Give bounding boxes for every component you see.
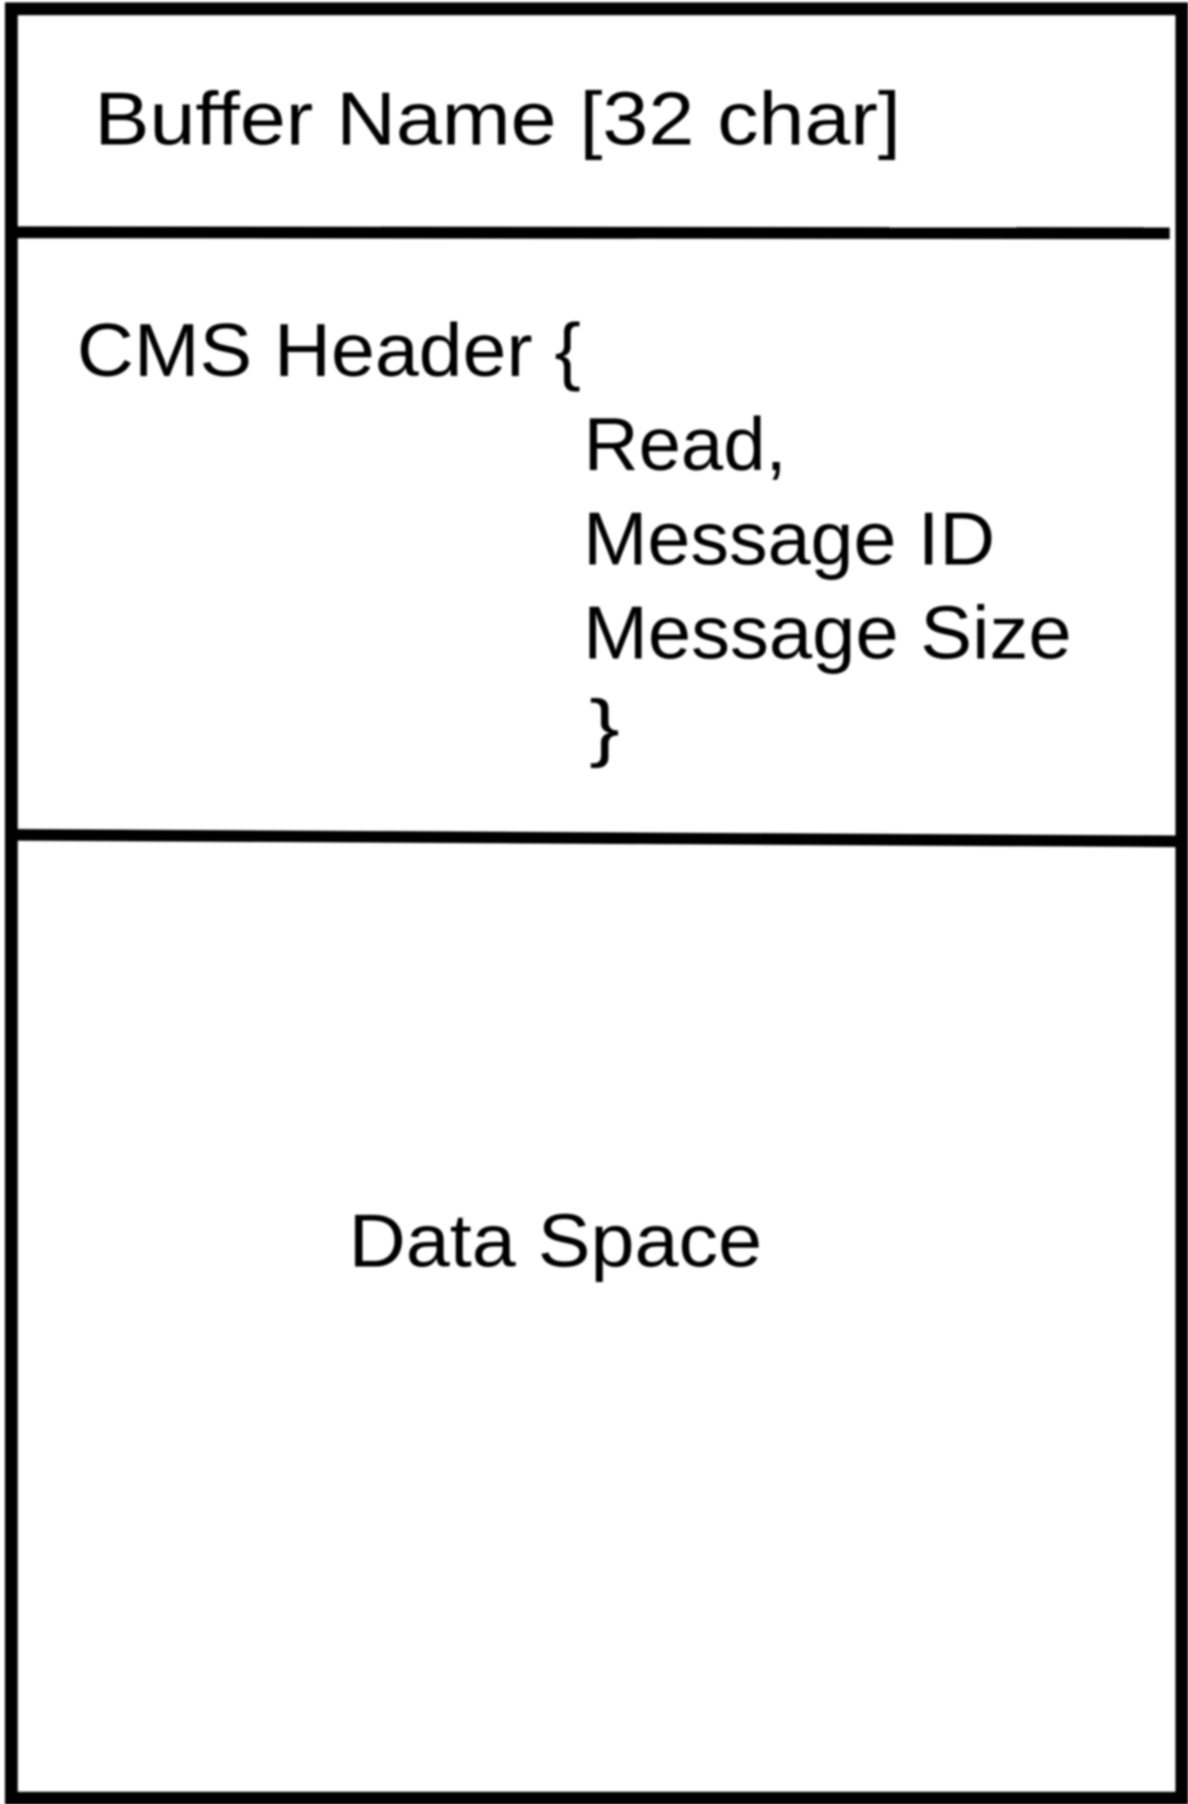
svg-text:Read,: Read, bbox=[584, 402, 787, 486]
svg-text:CMS Header {: CMS Header { bbox=[77, 308, 581, 392]
svg-text:Data Space: Data Space bbox=[349, 1199, 762, 1283]
svg-text:Message ID: Message ID bbox=[583, 496, 995, 580]
svg-text:}: } bbox=[589, 685, 619, 769]
svg-text:Buffer Name [32 char]: Buffer Name [32 char] bbox=[94, 77, 901, 161]
svg-text:Message Size: Message Size bbox=[583, 590, 1072, 674]
